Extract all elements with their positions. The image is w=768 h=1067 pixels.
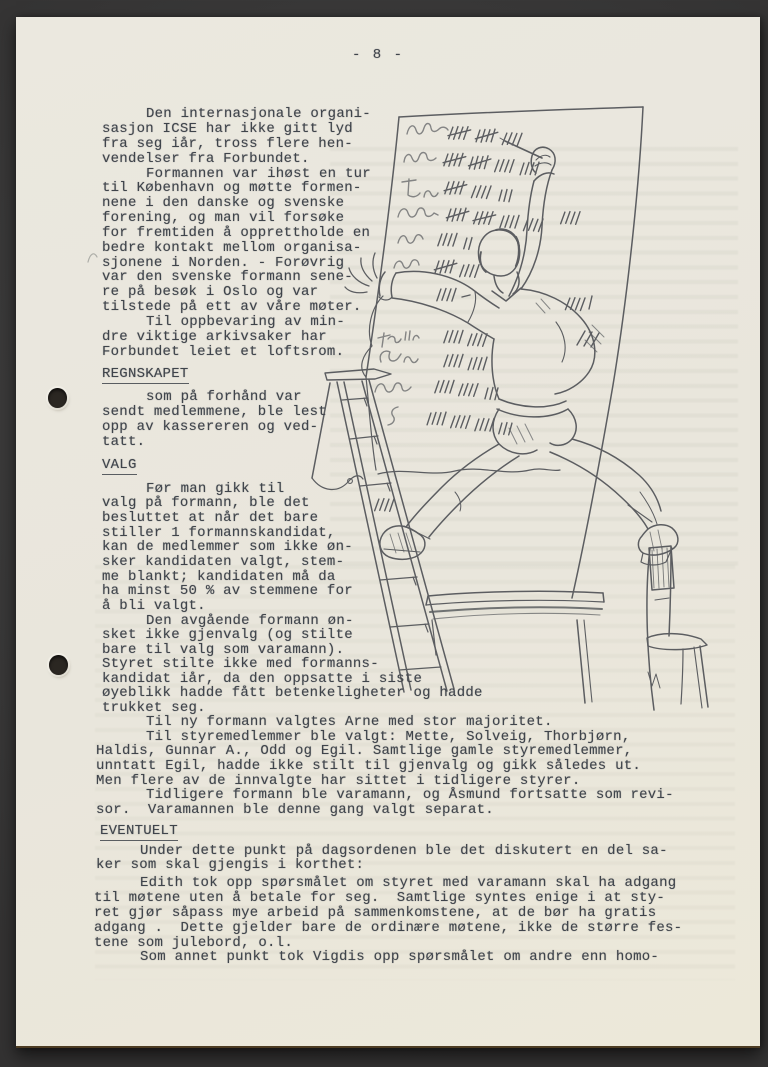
- text-line: forening, og man vil forsøke: [102, 211, 344, 225]
- text-line: til møtene uten å betale for seg. Samtli…: [94, 891, 665, 905]
- text-line: stiller 1 formannskandidat,: [102, 526, 336, 540]
- text-line: Den avgående formann øn-: [146, 614, 354, 628]
- text-line: me blankt; kandidaten må da: [102, 570, 336, 584]
- text-line: for fremtiden å opprettholde en: [102, 226, 370, 240]
- text-line: nene i den danske og svenske: [102, 196, 344, 210]
- text-line: adgang . Dette gjelder bare de ordinære …: [94, 921, 682, 935]
- text-line: tene som julebord, o.l.: [94, 936, 293, 950]
- section-heading-regnskapet: REGNSKAPET: [102, 367, 189, 384]
- text-line: Under dette punkt på dagsordenen ble det…: [140, 844, 668, 858]
- section-heading-valg: VALG: [102, 458, 137, 475]
- text-line: besluttet at når det bare: [102, 511, 318, 525]
- text-line: valg på formann, ble det: [102, 496, 310, 510]
- text-line: bedre kontakt mellom organisa-: [102, 241, 362, 255]
- text-line: sket ikke gjenvalg (og stilte: [102, 628, 353, 642]
- text-line: sjonene i Norden. - Forøvrig: [102, 256, 344, 270]
- text-line: til København og møtte formen-: [102, 181, 362, 195]
- text-line: tatt.: [102, 435, 145, 449]
- text-line: Formannen var ihøst en tur: [146, 167, 371, 181]
- text-line: kan de medlemmer som ikke øn-: [102, 540, 353, 554]
- text-line: Som annet punkt tok Vigdis opp spørsmåle…: [140, 950, 659, 964]
- text-line: som på forhånd var: [146, 390, 302, 404]
- text-line: Forbundet leiet et loftsrom.: [102, 345, 344, 359]
- text-line: dre viktige arkivsaker har: [102, 330, 327, 344]
- text-line: Til styremedlemmer ble valgt: Mette, Sol…: [146, 730, 630, 744]
- section-heading-eventuelt: EVENTUELT: [100, 824, 178, 841]
- text-line: unntatt Egil, hadde ikke stilt til gjenv…: [96, 759, 641, 773]
- text-line: å bli valgt.: [102, 599, 206, 613]
- scanned-page: - 8 - Den internasjonale organi- sasjon …: [0, 0, 768, 1067]
- text-line: sendt medlemmene, ble lest: [102, 405, 327, 419]
- text-line: sor. Varamannen ble denne gang valgt sep…: [96, 803, 494, 817]
- text-line: Men flere av de innvalgte har sittet i t…: [96, 774, 580, 788]
- text-line: Til ny formann valgtes Arne med stor maj…: [146, 715, 553, 729]
- text-line: re på besøk i Oslo og var: [102, 285, 318, 299]
- page-number: - 8 -: [352, 48, 404, 62]
- text-line: ret gjør såpass mye arbeid på sammenkoms…: [94, 906, 656, 920]
- text-line: bare til valg som varamann).: [102, 643, 344, 657]
- punch-hole: [49, 655, 68, 675]
- text-line: Før man gikk til: [146, 482, 284, 496]
- text-line: opp av kassereren og ved-: [102, 420, 318, 434]
- text-line: trukket seg.: [102, 701, 206, 715]
- text-line: sker kandidaten valgt, stem-: [102, 555, 344, 569]
- text-line: sasjon ICSE har ikke gitt lyd: [102, 122, 353, 136]
- text-line: vendelser fra Forbundet.: [102, 152, 310, 166]
- text-line: Styret stilte ikke med formanns-: [102, 657, 379, 671]
- punch-hole: [48, 388, 67, 408]
- text-line: Haldis, Gunnar A., Odd og Egil. Samtlige…: [96, 744, 632, 758]
- text-line: Den internasjonale organi-: [146, 107, 371, 121]
- text-line: tilstede på ett av våre møter.: [102, 300, 362, 314]
- text-line: var den svenske formann sene-: [102, 270, 353, 284]
- text-line: fra seg iår, tross flere hen-: [102, 137, 353, 151]
- text-line: Edith tok opp spørsmålet om styret med v…: [140, 876, 676, 890]
- text-line: Til oppbevaring av min-: [146, 315, 345, 329]
- text-line: kandidat iår, da den oppsatte i siste: [102, 672, 422, 686]
- text-line: ha minst 50 % av stemmene for: [102, 584, 353, 598]
- text-line: øyeblikk hadde fått betenkeligheter og h…: [102, 686, 483, 700]
- text-line: Tidligere formann ble varamann, og Åsmun…: [146, 788, 674, 802]
- text-line: ker som skal gjengis i korthet:: [96, 858, 364, 872]
